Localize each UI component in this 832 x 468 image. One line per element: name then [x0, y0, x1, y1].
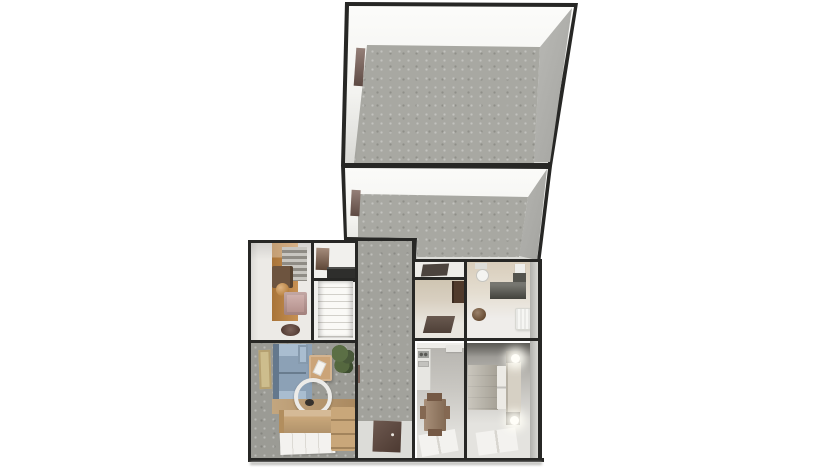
kitchen-wall-shelf: [446, 345, 462, 352]
lower-right-wall-face: [530, 262, 538, 459]
wall-hallway-top: [355, 238, 415, 241]
hallway-door-mat: [372, 421, 401, 453]
building-drop-shadow: [250, 462, 542, 465]
floor-plan-canvas: [0, 0, 832, 468]
wall-closet-bath-top: [412, 259, 542, 262]
study-pink-armchair: [284, 292, 307, 315]
dining-table: [424, 399, 446, 431]
bathroom-pouf: [472, 308, 486, 321]
lamp-north: [511, 354, 520, 363]
living-potted-plant: [332, 345, 354, 373]
wall-study-stairs-divider: [311, 243, 314, 343]
wall-hallway-left: [355, 238, 358, 461]
bed-headboard: [506, 362, 521, 413]
hallway-carpet: [358, 241, 412, 421]
bathroom-vanity: [490, 282, 526, 299]
bathroom-wall-basin: [515, 264, 525, 273]
wall-mid-vertical: [464, 262, 467, 461]
living-mirror-object: [305, 399, 314, 406]
dining-chair-south: [428, 429, 442, 436]
stair-steps: [318, 281, 353, 338]
bedroom-wall-shadow: [467, 343, 539, 357]
dining-chair-north: [427, 393, 442, 401]
living-blue-sofa-corner-piece: [298, 345, 308, 364]
toilet-bowl: [476, 269, 489, 282]
wall-outer-left: [248, 240, 251, 461]
wall-study-bottom: [248, 340, 358, 343]
bathroom-heater: [515, 308, 531, 330]
room-upper-front-doorway-mark: [350, 190, 360, 216]
wall-hallway-right: [412, 241, 415, 461]
closet-top-mat: [421, 264, 449, 277]
bedroom-bed: [468, 362, 519, 413]
wall-study-top: [248, 240, 358, 243]
wall-mid-horizontal: [412, 338, 542, 341]
kitchen-cooktop: [418, 351, 429, 358]
dining-chair-west: [420, 406, 426, 419]
hallway-mat-leaf: [391, 433, 394, 436]
wall-stairs-landing-line: [311, 278, 355, 281]
living-wall-art: [258, 350, 271, 389]
dining-chair-east: [444, 406, 450, 419]
living-beige-chaise: [331, 407, 355, 451]
wall-closet-inner-line: [415, 277, 464, 280]
bed-duvet: [468, 365, 498, 410]
kitchen-sink: [418, 361, 429, 367]
lamp-south: [510, 416, 519, 425]
closet-dark-rug: [423, 316, 455, 333]
study-pet-bed: [281, 324, 300, 336]
room-upper-back: [341, 2, 579, 167]
living-blue-sofa-seat-line: [279, 372, 306, 374]
wall-outer-right: [538, 259, 542, 461]
